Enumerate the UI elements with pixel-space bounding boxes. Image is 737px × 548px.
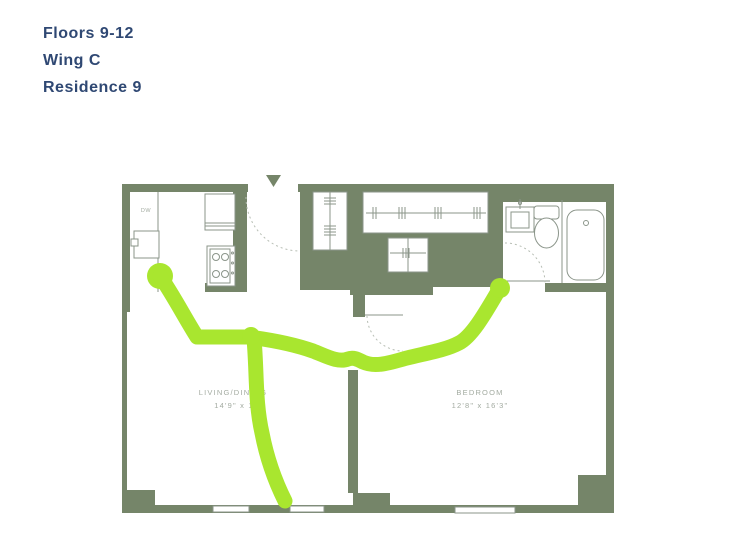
bathroom-door-swing xyxy=(505,243,545,283)
window-bedroom xyxy=(455,507,515,513)
dishwasher-label: DW xyxy=(141,208,151,214)
toilet-icon xyxy=(534,206,559,248)
floorplan-drawing: DW xyxy=(0,0,737,548)
hall-closet-long xyxy=(363,192,488,233)
stove-icon xyxy=(207,246,235,286)
route-end-dot xyxy=(490,278,510,298)
bathroom xyxy=(505,199,604,283)
hall-closet-small xyxy=(388,238,428,272)
kitchen: DW xyxy=(131,192,235,292)
bedroom-door xyxy=(365,315,403,351)
route-branch-path xyxy=(254,339,285,501)
floorplan-page: Floors 9-12 Wing C Residence 9 xyxy=(0,0,737,548)
entry-arrow-icon xyxy=(266,175,281,187)
window-living-left xyxy=(213,506,249,512)
route-junction-dot xyxy=(242,327,260,345)
kitchen-faucet-icon xyxy=(131,239,138,246)
fridge-icon xyxy=(205,194,235,230)
window-living-right xyxy=(290,506,324,512)
bedroom-door-swing xyxy=(367,316,403,351)
entry-door-swing xyxy=(246,197,300,251)
highlighted-route xyxy=(147,263,510,501)
bedroom-label: BEDROOM xyxy=(456,388,503,397)
hall-closet-shelved xyxy=(313,192,347,250)
bathroom-sink-icon xyxy=(506,199,534,232)
bedroom-dimensions: 12'8" x 16'3" xyxy=(452,401,509,410)
bathtub-icon xyxy=(567,210,604,280)
